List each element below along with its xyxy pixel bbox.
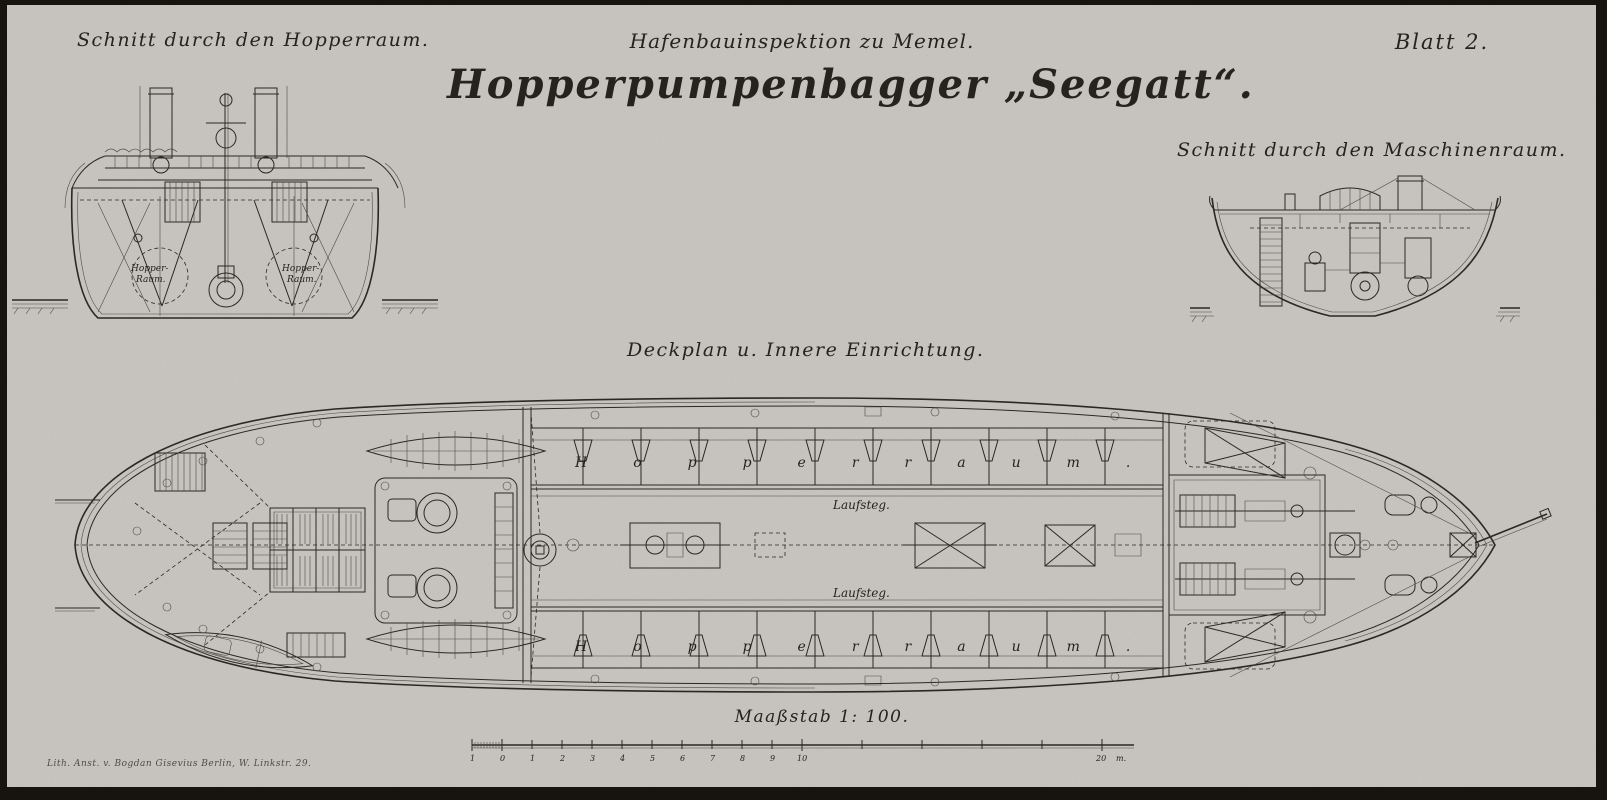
scale-tick: 0 <box>500 754 505 763</box>
institution-title: Hafenbauinspektion zu Memel. <box>597 29 1007 53</box>
scale-tick: 8 <box>740 754 745 763</box>
machine-section-title: Schnitt durch den Maschinenraum. <box>1177 139 1547 161</box>
trestle-1 <box>903 523 997 568</box>
scale-tick: 2 <box>559 754 565 763</box>
sheet-number: Blatt 2. <box>1377 30 1507 54</box>
scale-tick: 5 <box>650 754 655 763</box>
scale-tick-labels: 1 0 1 2 3 4 5 6 7 8 9 10 20 m. <box>470 754 1126 763</box>
lifeboat-bottom <box>367 619 545 659</box>
deckplan-drawing: Hopperraum. Hopperraum. Laufsteg. Laufst… <box>55 383 1555 713</box>
laufsteg-top-label: Laufsteg. <box>832 498 890 512</box>
deck-winch <box>620 523 730 568</box>
paper: Schnitt durch den Hopperraum. Hafenbauin… <box>7 5 1596 787</box>
machinery <box>1250 214 1470 300</box>
scale-tick: 9 <box>770 754 775 763</box>
hopper-room-right-label-2: Raum. <box>286 275 317 285</box>
hopper-room-right-label-1: Hopper- <box>281 264 319 274</box>
plate-frame: Schnitt durch den Hopperraum. Hafenbauin… <box>0 0 1607 800</box>
pump-room <box>375 478 517 623</box>
bowsprit <box>1475 508 1551 548</box>
lifeboat-top <box>367 431 545 471</box>
hopperraum-top-label: Hopperraum. <box>574 455 1176 471</box>
deck-structure <box>65 149 405 208</box>
deckplan-title: Deckplan u. Innere Einrichtung. <box>627 339 977 361</box>
deck-and-superstructure <box>1210 176 1501 214</box>
trestle-2 <box>1045 525 1095 566</box>
hopper-cross-section-drawing: Hopper- Raum. Hopper- Raum. <box>10 68 440 363</box>
main-title: Hopperpumpenbagger „Seegatt“. <box>447 61 1167 108</box>
scale-tick: 7 <box>710 754 716 763</box>
stern-area <box>133 413 579 679</box>
machine-cross-section-drawing <box>1190 168 1520 343</box>
scale-tick: 1 <box>470 754 475 763</box>
hopper-section-title: Schnitt durch den Hopperraum. <box>77 29 367 51</box>
scale-tick: 6 <box>680 754 685 763</box>
skylight-grid <box>270 508 365 592</box>
stern-hatches <box>135 445 345 657</box>
hopper-room-left-label-1: Hopper- <box>130 264 168 274</box>
scale-tick: 10 <box>797 754 807 763</box>
scale-tick: 1 <box>530 754 535 763</box>
scale-bar: 1 0 1 2 3 4 5 6 7 8 9 10 20 m. <box>472 735 1162 767</box>
hopper-room-left-label-2: Raum. <box>135 275 166 285</box>
hopper-compartments <box>98 182 354 316</box>
funnels <box>140 86 287 173</box>
hull-section <box>1212 198 1498 316</box>
scale-tick: 20 <box>1095 754 1106 763</box>
scale-tick: 3 <box>590 754 595 763</box>
scale-unit: m. <box>1116 754 1126 763</box>
waterline <box>1190 308 1520 322</box>
hopperraum-bottom-label: Hopperraum. <box>574 639 1176 655</box>
scale-tick: 4 <box>619 754 625 763</box>
laufsteg-bottom-label: Laufsteg. <box>832 586 890 600</box>
lithographer-imprint: Lith. Anst. v. Bogdan Gisevius Berlin, W… <box>47 759 311 769</box>
